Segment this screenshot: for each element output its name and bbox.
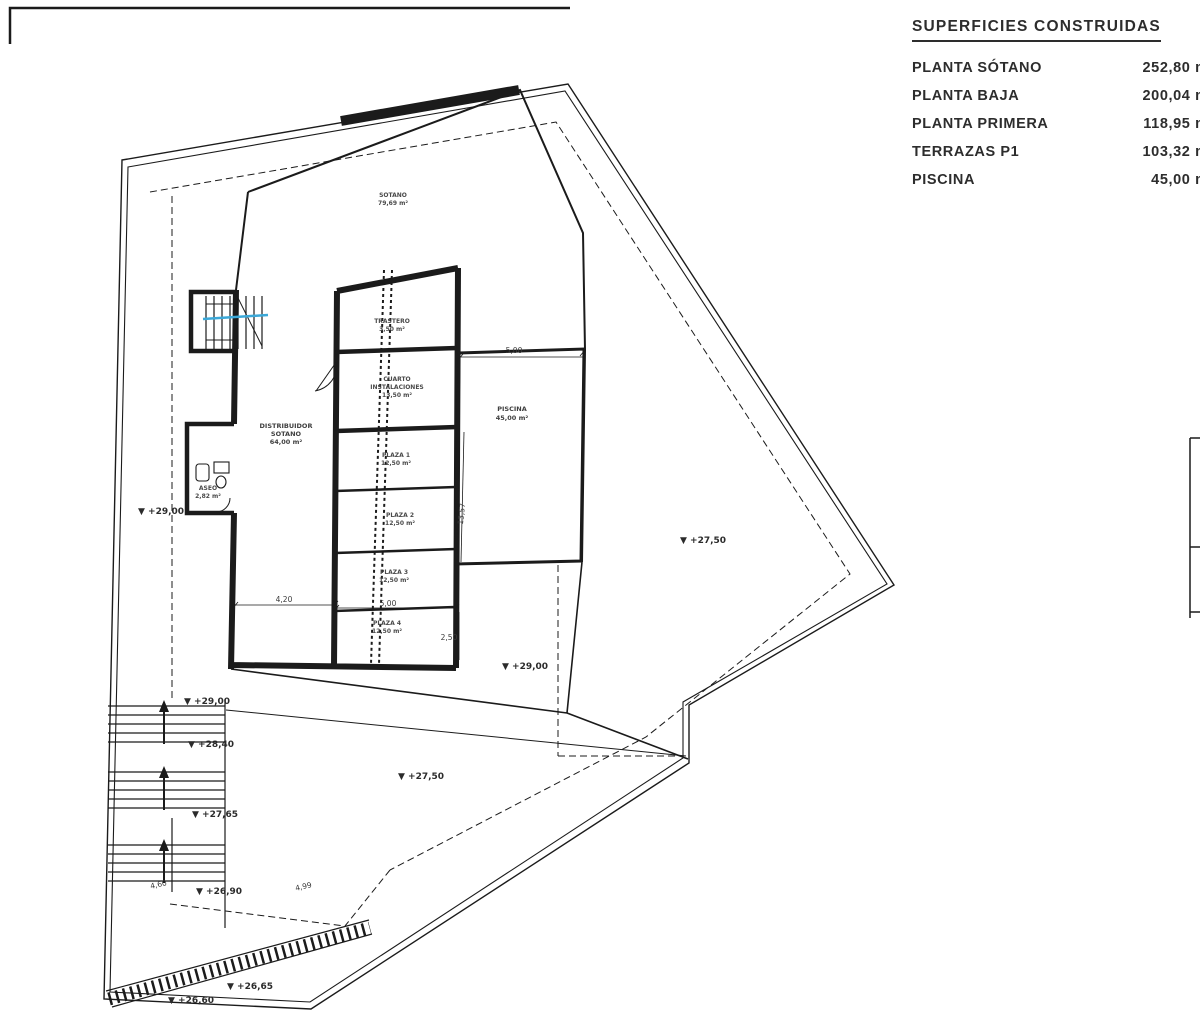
room-label-sotano: SOTANO [379, 192, 407, 199]
room-label-distribuidor: DISTRIBUIDOR [260, 422, 313, 430]
room-label-distribuidor-2: SOTANO [271, 430, 302, 438]
room-label-aseo: ASEO [199, 485, 217, 492]
up-arrows [159, 700, 169, 883]
floor-plan-sheet: SOTANO 79,69 m² TRASTERO 3,50 m² CUARTO … [0, 0, 1200, 1021]
table-title: SUPERFICIES CONSTRUIDAS [912, 18, 1161, 42]
room-label-trastero: TRASTERO [374, 318, 410, 325]
level-marker: ▼ +29,00 [502, 662, 548, 672]
level-marker: ▼ +27,50 [680, 536, 726, 546]
room-area-piscina: 45,00 m² [496, 414, 529, 422]
row-label: PISCINA [912, 172, 975, 188]
row-value: 45,00 m² [1151, 172, 1200, 188]
room-labels: SOTANO 79,69 m² TRASTERO 3,50 m² CUARTO … [195, 192, 528, 635]
room-area-aseo: 2,82 m² [195, 493, 221, 500]
room-area-distribuidor: 64,00 m² [270, 438, 303, 446]
room-label-plaza2: PLAZA 2 [386, 512, 414, 519]
level-marker: ▼ +27,65 [192, 810, 238, 820]
room-label-cuarto: CUARTO [383, 376, 410, 383]
dim-walk: 4,99 [294, 880, 313, 893]
level-marker: ▼ +26,65 [227, 982, 273, 992]
table-row: PLANTA PRIMERA 118,95 m² [912, 116, 1200, 144]
row-label: PLANTA BAJA [912, 88, 1019, 104]
row-label: PLANTA PRIMERA [912, 116, 1048, 132]
level-marker: ▼ +28,40 [188, 740, 234, 750]
room-label-piscina: PISCINA [497, 405, 527, 413]
level-marker: ▼ +26,90 [196, 887, 242, 897]
aseo-door-arc [216, 498, 230, 512]
row-value: 252,80 m² [1143, 60, 1200, 76]
dim-distribuidor: 4,20 [276, 595, 293, 604]
room-label-plaza3: PLAZA 3 [380, 569, 408, 576]
dim-stair: 4,60 [149, 878, 168, 891]
level-marker: ▼ +29,00 [184, 697, 230, 707]
built-surfaces-table: SUPERFICIES CONSTRUIDAS PLANTA SÓTANO 25… [912, 18, 1200, 200]
room-area-plaza4: 12,50 m² [372, 628, 402, 635]
plot-boundary [104, 84, 894, 1009]
room-area-plaza3: 12,50 m² [379, 577, 409, 584]
room-label-cuarto-2: INSTALACIONES [370, 384, 424, 391]
row-value: 103,32 m² [1143, 144, 1200, 160]
dim-pool-top: 5,00 [506, 346, 523, 355]
row-label: TERRAZAS P1 [912, 144, 1019, 160]
dim-half: 2,50 [441, 633, 458, 642]
row-label: PLANTA SÓTANO [912, 60, 1042, 76]
table-row: PLANTA SÓTANO 252,80 m² [912, 60, 1200, 88]
level-marker: ▼ +27,50 [398, 772, 444, 782]
level-marker: ▼ +26,60 [168, 996, 214, 1006]
level-marker: ▼ +29,00 [138, 507, 184, 517]
setback-dashed-lines [150, 122, 850, 926]
side-table-fragment [1190, 438, 1200, 618]
table-row: PLANTA BAJA 200,04 m² [912, 88, 1200, 116]
table-row: TERRAZAS P1 103,32 m² [912, 144, 1200, 172]
row-value: 200,04 m² [1143, 88, 1200, 104]
dim-pool-side: 13,57 [456, 502, 467, 525]
pool-outline [456, 349, 584, 564]
sheet-border [10, 8, 570, 44]
room-label-plaza1: PLAZA 1 [382, 452, 410, 459]
table-row: PISCINA 45,00 m² [912, 172, 1200, 200]
row-value: 118,95 m² [1143, 116, 1200, 132]
room-area-plaza1: 12,50 m² [381, 460, 411, 467]
room-area-cuarto: 13,50 m² [382, 392, 412, 399]
room-area-trastero: 3,50 m² [379, 326, 405, 333]
dim-plaza: 5,00 [380, 599, 397, 608]
room-label-plaza4: PLAZA 4 [373, 620, 401, 627]
room-area-plaza2: 12,50 m² [385, 520, 415, 527]
room-area-sotano: 79,69 m² [378, 200, 408, 207]
